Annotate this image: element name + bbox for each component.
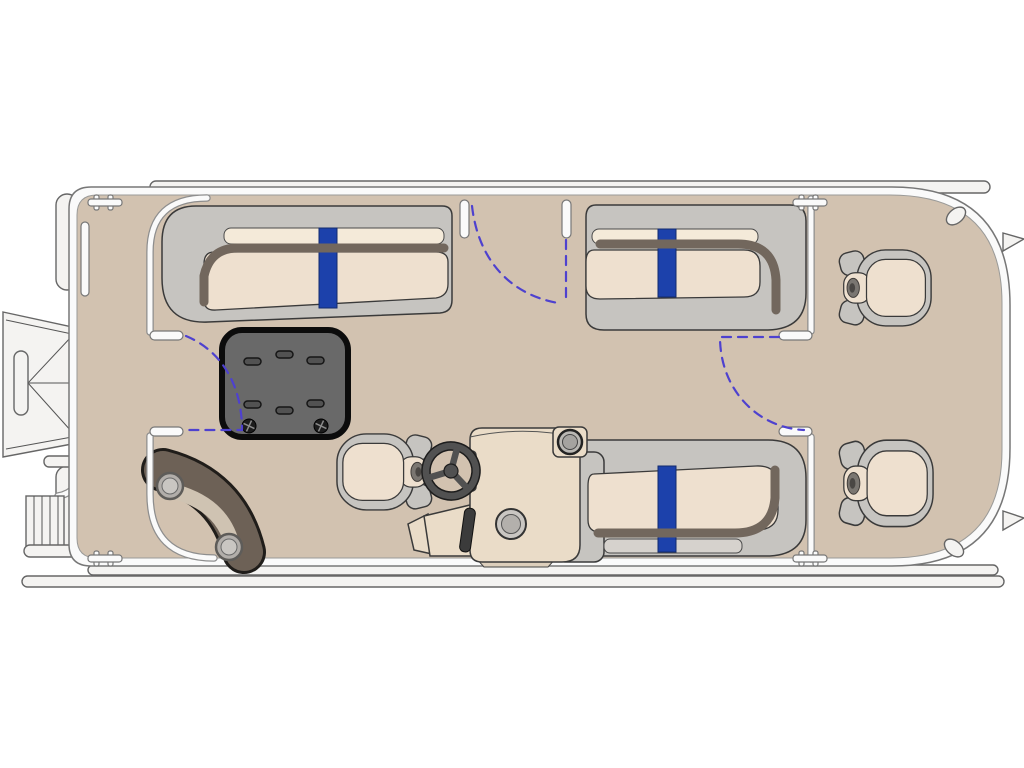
table-vent-slot: [244, 358, 261, 365]
table-vent-slot: [307, 357, 324, 364]
accent-stripe: [658, 229, 676, 297]
center-table: [222, 330, 348, 437]
lounge-port-stern: [162, 206, 452, 322]
lounge-cushion: [588, 466, 778, 532]
pontoon-strip-bottom-outer: [22, 576, 1004, 587]
table-vent-slot: [276, 407, 293, 414]
stern-ramp: [3, 312, 72, 457]
gate-post: [562, 200, 571, 238]
gate-post: [779, 331, 812, 340]
helm-chair: [337, 433, 434, 510]
pontoon-floorplan: [0, 0, 1024, 768]
gate-post: [779, 427, 812, 436]
table-vent-slot: [244, 401, 261, 408]
gate-post: [150, 331, 183, 340]
table-vent-slot: [276, 351, 293, 358]
gate-post: [150, 427, 183, 436]
gate-post: [460, 200, 469, 238]
lounge-starboard-bow: [556, 440, 806, 562]
rubrail-slot: [81, 222, 89, 296]
accent-stripe: [658, 466, 676, 552]
bow-chair-top: [838, 249, 932, 326]
bow-chair-bottom: [837, 439, 933, 527]
accent-stripe: [319, 228, 337, 308]
table-vent-slot: [307, 400, 324, 407]
boat-floorplan-svg: [0, 0, 1024, 768]
lounge-port-bow: [586, 205, 806, 330]
